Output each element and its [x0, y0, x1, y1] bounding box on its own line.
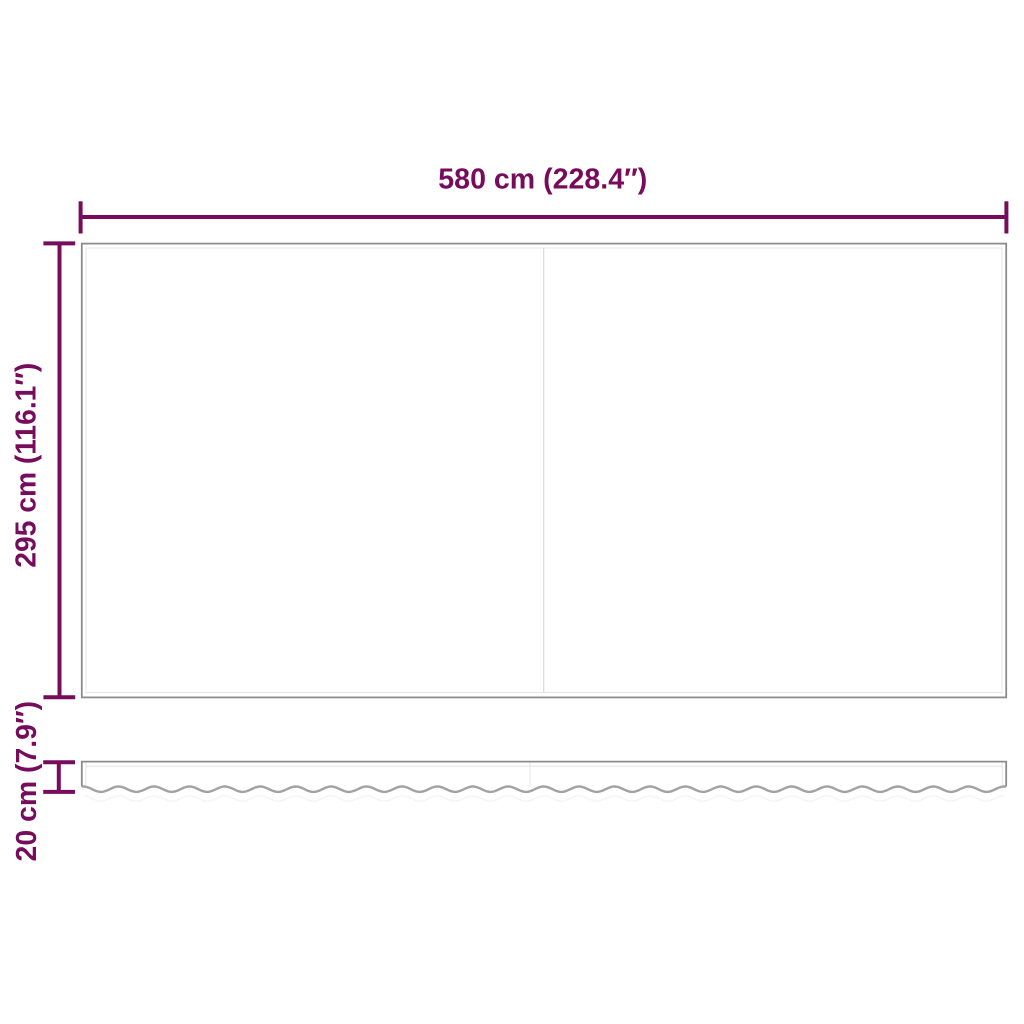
svg-text:20 cm (7.9″): 20 cm (7.9″) — [10, 701, 42, 862]
svg-text:295 cm (116.1″): 295 cm (116.1″) — [9, 363, 41, 568]
svg-text:580 cm (228.4″): 580 cm (228.4″) — [438, 162, 647, 194]
